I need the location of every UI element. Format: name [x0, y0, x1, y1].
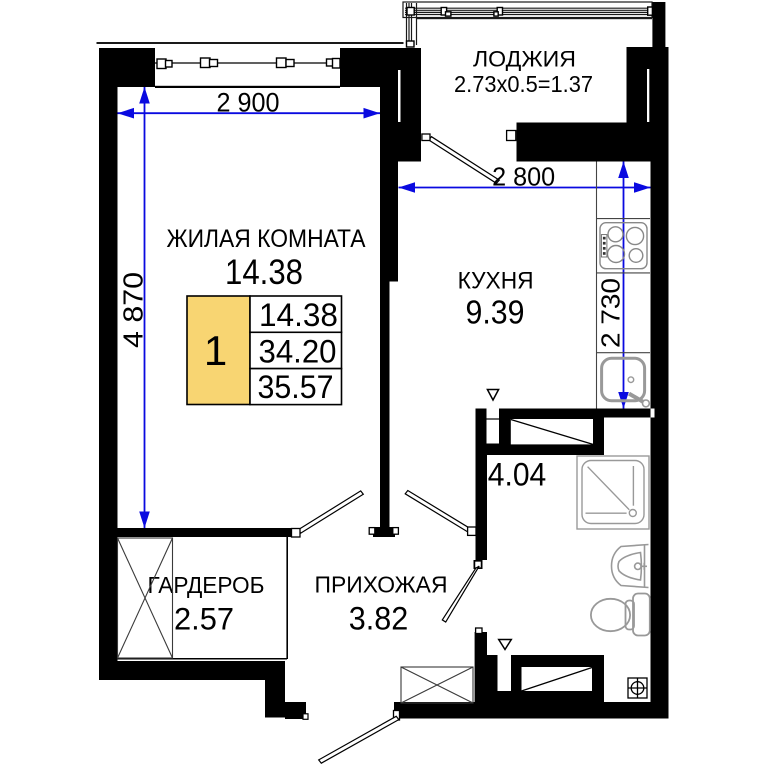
svg-text:2 730: 2 730 [596, 278, 626, 348]
svg-text:4 870: 4 870 [118, 272, 149, 348]
svg-text:14.38: 14.38 [259, 297, 338, 333]
svg-text:2.57: 2.57 [174, 600, 234, 636]
svg-text:3.82: 3.82 [349, 600, 409, 636]
svg-text:ГАРДЕРОБ: ГАРДЕРОБ [148, 572, 265, 598]
svg-text:34.20: 34.20 [259, 333, 337, 369]
svg-text:14.38: 14.38 [225, 252, 303, 292]
svg-text:ЛОДЖИЯ: ЛОДЖИЯ [473, 46, 576, 71]
svg-text:4.04: 4.04 [488, 457, 547, 493]
svg-text:1: 1 [204, 327, 227, 374]
svg-text:2 800: 2 800 [492, 162, 555, 192]
svg-text:ЖИЛАЯ КОМНАТА: ЖИЛАЯ КОМНАТА [167, 225, 366, 253]
svg-text:КУХНЯ: КУХНЯ [458, 268, 534, 295]
svg-text:2 900: 2 900 [217, 88, 280, 118]
svg-text:2.73х0.5=1.37: 2.73х0.5=1.37 [454, 71, 593, 97]
svg-text:35.57: 35.57 [258, 369, 334, 405]
svg-text:9.39: 9.39 [466, 294, 525, 331]
svg-text:ПРИХОЖАЯ: ПРИХОЖАЯ [315, 572, 448, 598]
